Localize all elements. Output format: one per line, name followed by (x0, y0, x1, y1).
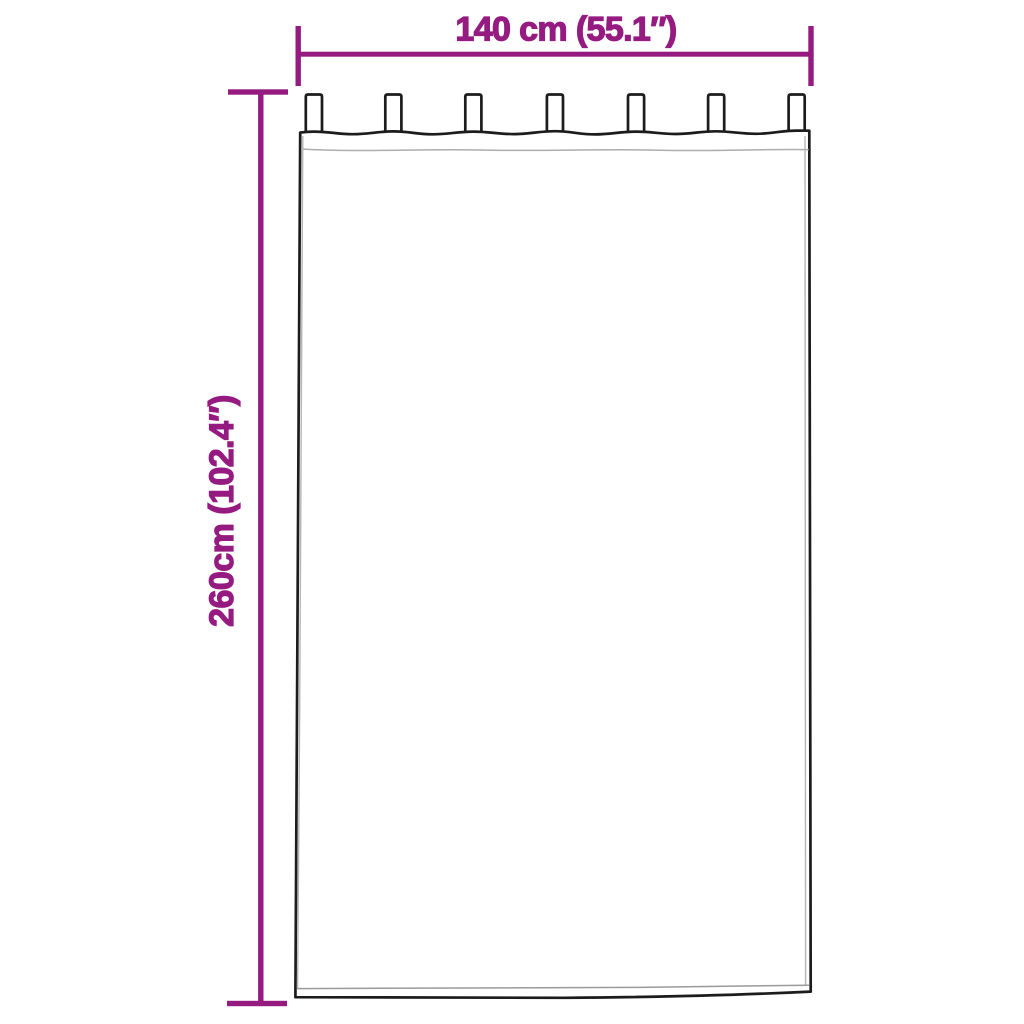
svg-text:140 cm (55.1″): 140 cm (55.1″) (455, 11, 676, 49)
svg-text:260cm (102.4″): 260cm (102.4″) (203, 395, 241, 627)
